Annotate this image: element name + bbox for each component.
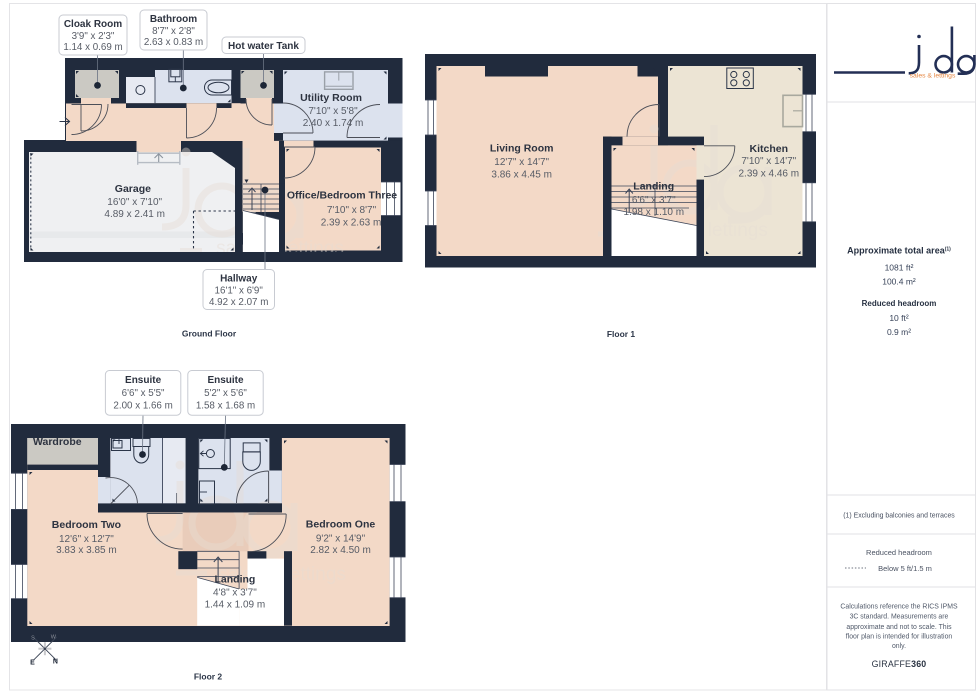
svg-text:2.82 x 4.50 m: 2.82 x 4.50 m: [310, 545, 371, 556]
svg-text:9'2" x 14'9": 9'2" x 14'9": [316, 534, 366, 545]
svg-text:GIRAFFE360: GIRAFFE360: [872, 659, 927, 669]
svg-text:2.39 x 2.63 m: 2.39 x 2.63 m: [321, 217, 382, 228]
svg-text:N: N: [53, 659, 58, 666]
svg-text:Garage: Garage: [115, 183, 151, 195]
svg-text:S: S: [31, 636, 35, 642]
svg-text:(1) Excluding balconies and te: (1) Excluding balconies and terraces: [843, 512, 955, 519]
svg-text:Landing: Landing: [214, 574, 255, 586]
svg-text:Floor 2: Floor 2: [194, 671, 223, 681]
svg-text:1.14 x 0.69 m: 1.14 x 0.69 m: [63, 42, 122, 53]
svg-text:1.44 x 1.09 m: 1.44 x 1.09 m: [205, 600, 266, 611]
svg-text:10 ft²: 10 ft²: [889, 313, 909, 323]
svg-text:Hot water Tank: Hot water Tank: [228, 41, 299, 52]
svg-text:Ground Floor: Ground Floor: [182, 328, 237, 338]
svg-text:Living Room: Living Room: [490, 142, 554, 154]
svg-text:Calculations reference the RIC: Calculations reference the RICS IPMS: [840, 603, 958, 610]
svg-text:Office/Bedroom Three: Office/Bedroom Three: [287, 190, 397, 202]
svg-text:Cloak Room: Cloak Room: [64, 19, 122, 30]
svg-text:sales & lettings: sales & lettings: [910, 72, 956, 79]
svg-text:16'0" x 7'10": 16'0" x 7'10": [107, 197, 162, 208]
svg-text:Utility Room: Utility Room: [300, 92, 362, 104]
svg-text:2.63 x 0.83 m: 2.63 x 0.83 m: [144, 37, 203, 48]
svg-text:7'10" x 5'8": 7'10" x 5'8": [308, 106, 358, 117]
svg-text:Ensuite: Ensuite: [207, 375, 244, 386]
svg-text:E: E: [30, 660, 35, 667]
svg-text:1.98 x 1.10 m: 1.98 x 1.10 m: [624, 207, 685, 218]
svg-text:3.86 x 4.45 m: 3.86 x 4.45 m: [491, 170, 552, 181]
svg-text:12'7" x 14'7": 12'7" x 14'7": [494, 157, 549, 168]
svg-text:floor plan is intended for ill: floor plan is intended for illustration: [846, 633, 953, 640]
svg-text:Hallway: Hallway: [220, 274, 258, 285]
svg-text:Bedroom One: Bedroom One: [306, 519, 376, 531]
svg-text:12'6" x 12'7": 12'6" x 12'7": [59, 534, 114, 545]
svg-text:approximate and not to scale.: approximate and not to scale. This: [846, 624, 952, 631]
svg-text:Ensuite: Ensuite: [125, 375, 162, 386]
svg-text:Bedroom Two: Bedroom Two: [52, 519, 121, 531]
svg-text:3.83 x 3.85 m: 3.83 x 3.85 m: [56, 545, 117, 556]
svg-text:5'2" x 5'6": 5'2" x 5'6": [204, 388, 247, 399]
svg-text:1081 ft²: 1081 ft²: [885, 262, 914, 272]
svg-text:0.9 m²: 0.9 m²: [887, 327, 911, 337]
svg-text:Reduced headroom: Reduced headroom: [862, 299, 937, 308]
svg-text:4.89 x 2.41 m: 4.89 x 2.41 m: [104, 209, 165, 220]
svg-text:7'10" x 8'7": 7'10" x 8'7": [327, 205, 377, 216]
svg-text:only.: only.: [892, 643, 906, 650]
svg-text:1.58 x 1.68 m: 1.58 x 1.68 m: [196, 401, 255, 412]
svg-text:16'1" x 6'9": 16'1" x 6'9": [215, 286, 264, 297]
svg-text:W: W: [51, 635, 57, 641]
svg-text:2.00 x 1.66 m: 2.00 x 1.66 m: [113, 401, 172, 412]
svg-text:2.40 x 1.74 m: 2.40 x 1.74 m: [303, 118, 364, 129]
svg-text:6'6" x 3'7": 6'6" x 3'7": [632, 195, 676, 206]
svg-text:100.4 m²: 100.4 m²: [882, 277, 916, 287]
svg-text:8'7" x 2'8": 8'7" x 2'8": [152, 26, 195, 37]
svg-text:Kitchen: Kitchen: [750, 143, 789, 155]
svg-text:7'10" x 14'7": 7'10" x 14'7": [741, 156, 796, 167]
svg-text:4.92 x 2.07 m: 4.92 x 2.07 m: [209, 297, 268, 308]
svg-text:3C standard. Measurements are: 3C standard. Measurements are: [850, 614, 949, 621]
svg-text:Below 5 ft/1.5 m: Below 5 ft/1.5 m: [878, 564, 932, 573]
svg-text:6'6" x 5'5": 6'6" x 5'5": [122, 388, 165, 399]
svg-text:Bathroom: Bathroom: [150, 14, 197, 25]
svg-text:Reduced headroom: Reduced headroom: [866, 548, 932, 557]
svg-text:2.39 x 4.46 m: 2.39 x 4.46 m: [739, 168, 800, 179]
svg-text:Wardrobe: Wardrobe: [33, 436, 82, 448]
svg-text:Approximate total area(1): Approximate total area(1): [847, 246, 951, 256]
svg-text:Floor 1: Floor 1: [607, 329, 636, 339]
svg-text:4'8" x 3'7": 4'8" x 3'7": [213, 588, 257, 599]
svg-text:3'9" x 2'3": 3'9" x 2'3": [72, 31, 115, 42]
svg-text:Landing: Landing: [633, 180, 674, 192]
